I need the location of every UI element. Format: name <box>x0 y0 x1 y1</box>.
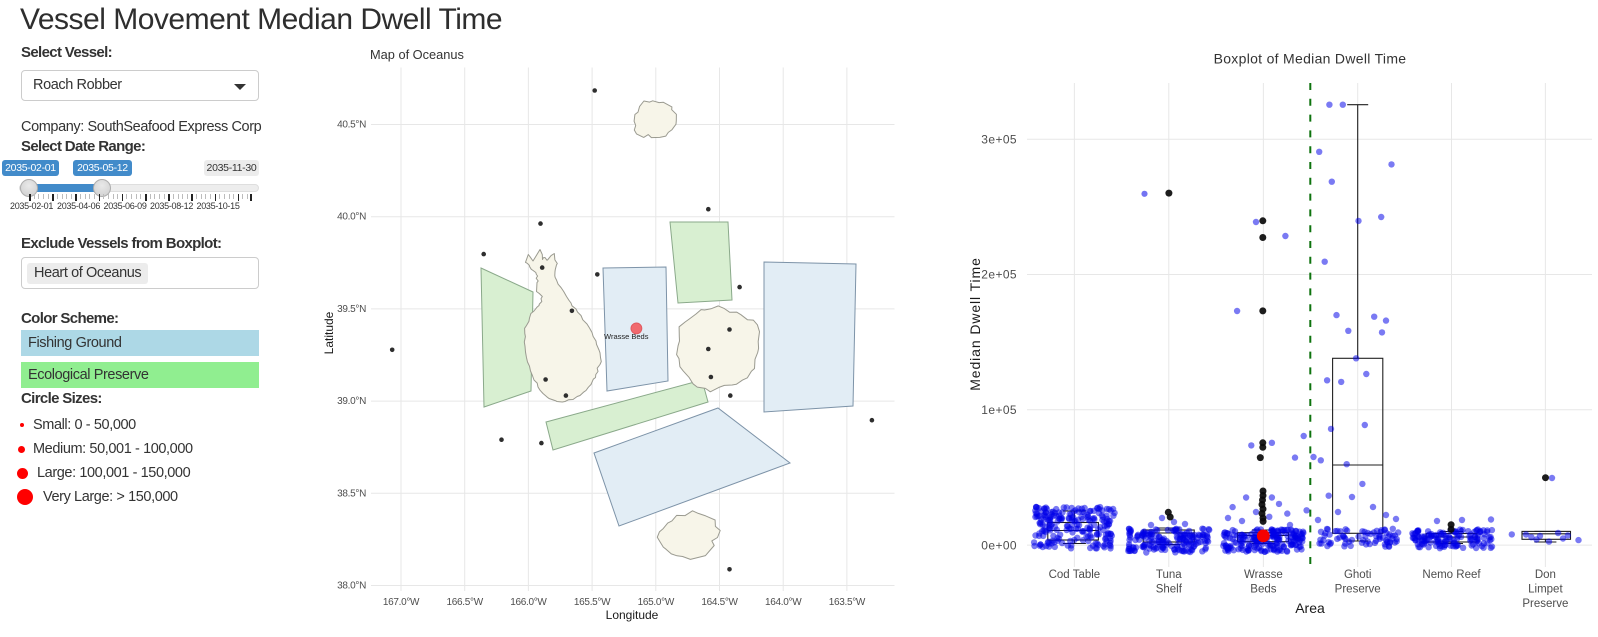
svg-text:164.0°W: 164.0°W <box>765 597 802 608</box>
svg-text:2e+05: 2e+05 <box>981 268 1017 282</box>
svg-text:167.0°W: 167.0°W <box>383 597 420 608</box>
svg-text:166.5°W: 166.5°W <box>447 597 484 608</box>
svg-text:Limpet: Limpet <box>1528 583 1563 595</box>
svg-text:164.5°W: 164.5°W <box>701 597 738 608</box>
svg-text:Don: Don <box>1535 569 1556 581</box>
svg-text:39.0°N: 39.0°N <box>337 396 366 407</box>
svg-text:163.5°W: 163.5°W <box>829 597 866 608</box>
svg-text:Map of Oceanus: Map of Oceanus <box>370 47 464 62</box>
svg-text:Boxplot of Median Dwell Time: Boxplot of Median Dwell Time <box>1214 51 1407 67</box>
svg-text:165.0°W: 165.0°W <box>638 597 675 608</box>
svg-text:38.0°N: 38.0°N <box>337 581 366 592</box>
svg-text:40.5°N: 40.5°N <box>337 120 366 131</box>
svg-text:Preserve: Preserve <box>1335 583 1381 595</box>
svg-text:Ghoti: Ghoti <box>1344 569 1372 581</box>
svg-text:Tuna: Tuna <box>1156 569 1182 581</box>
svg-text:Preserve: Preserve <box>1522 598 1568 610</box>
svg-text:Latitude: Latitude <box>322 311 336 354</box>
svg-text:Beds: Beds <box>1250 583 1276 595</box>
svg-text:Wrasse Beds: Wrasse Beds <box>604 332 649 341</box>
svg-text:Wrasse: Wrasse <box>1244 569 1283 581</box>
svg-text:38.5°N: 38.5°N <box>337 488 366 499</box>
svg-text:166.0°W: 166.0°W <box>510 597 547 608</box>
svg-text:Shelf: Shelf <box>1156 583 1183 595</box>
svg-text:1e+05: 1e+05 <box>981 403 1017 417</box>
svg-text:39.5°N: 39.5°N <box>337 304 366 315</box>
svg-text:Area: Area <box>1295 600 1325 616</box>
svg-text:0e+00: 0e+00 <box>981 538 1017 552</box>
svg-text:Nemo Reef: Nemo Reef <box>1422 569 1481 581</box>
svg-text:3e+05: 3e+05 <box>981 132 1017 146</box>
svg-text:165.5°W: 165.5°W <box>574 597 611 608</box>
svg-text:Median Dwell Time: Median Dwell Time <box>967 257 983 391</box>
svg-text:40.0°N: 40.0°N <box>337 212 366 223</box>
svg-text:Longitude: Longitude <box>606 608 659 622</box>
svg-text:Cod Table: Cod Table <box>1049 569 1101 581</box>
